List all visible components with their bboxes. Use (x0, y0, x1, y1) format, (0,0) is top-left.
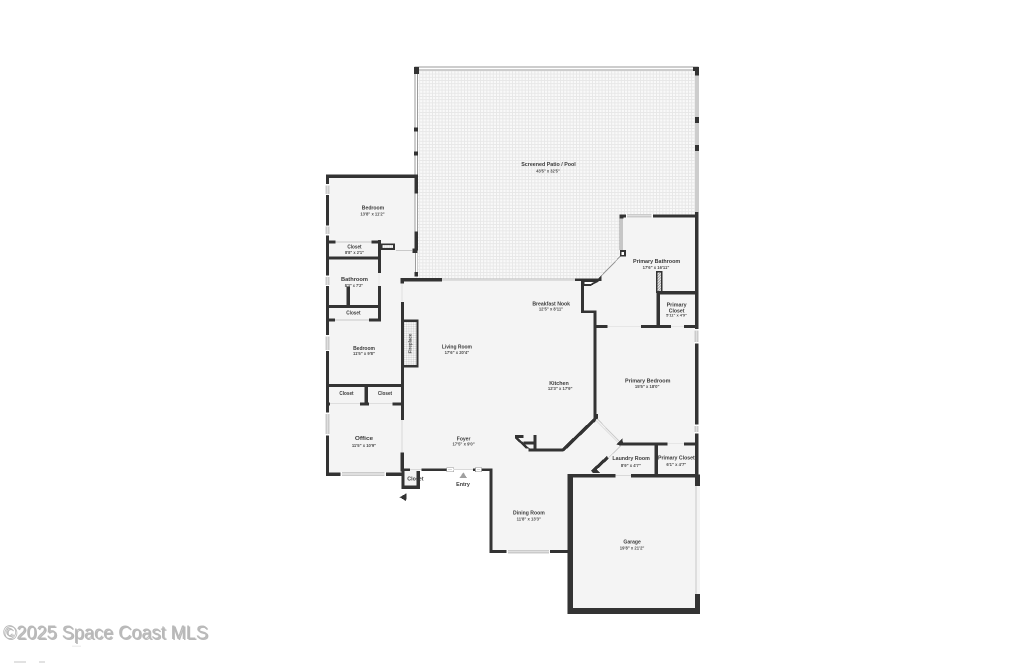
svg-text:11'5" x 10'9": 11'5" x 10'9" (352, 443, 376, 448)
svg-text:8'9" x 4'7": 8'9" x 4'7" (621, 463, 641, 468)
svg-text:6'1" x 4'7": 6'1" x 4'7" (666, 462, 686, 467)
svg-text:12'3" x 17'9": 12'3" x 17'9" (548, 386, 573, 391)
svg-text:©2025 Space Coast MLS: ©2025 Space Coast MLS (3, 623, 208, 644)
svg-text:17'6" x 16'11": 17'6" x 16'11" (643, 265, 670, 270)
svg-text:Closet: Closet (407, 477, 424, 483)
svg-text:11'5" x 9'8": 11'5" x 9'8" (353, 351, 375, 356)
svg-text:Fireplace: Fireplace (408, 333, 413, 353)
svg-text:11'8" x 13'3": 11'8" x 13'3" (517, 516, 541, 521)
svg-text:19'8" x 21'2": 19'8" x 21'2" (620, 545, 645, 550)
svg-text:8'3" x 7'2": 8'3" x 7'2" (345, 283, 363, 288)
svg-text:Entry: Entry (456, 482, 470, 488)
svg-text:17'6" x 20'4": 17'6" x 20'4" (445, 350, 470, 355)
svg-text:13'8" x 11'2": 13'8" x 11'2" (360, 211, 384, 216)
svg-text:15'5" x 18'0": 15'5" x 18'0" (635, 384, 660, 389)
svg-text:8'8" x 2'1": 8'8" x 2'1" (345, 250, 364, 255)
svg-text:Screened Patio / Pool: Screened Patio / Pool (521, 162, 576, 168)
svg-text:Office: Office (355, 436, 373, 442)
svg-text:Closet: Closet (346, 311, 360, 317)
svg-text:Closet: Closet (378, 391, 392, 397)
svg-text:Primary Closet: Primary Closet (658, 456, 695, 462)
svg-text:Closet: Closet (339, 391, 353, 397)
svg-text:12'5" x 8'11": 12'5" x 8'11" (539, 307, 563, 312)
svg-text:5'11" x 4'9": 5'11" x 4'9" (666, 313, 687, 318)
svg-text:43'5" x 32'5": 43'5" x 32'5" (536, 169, 560, 174)
svg-text:17'5" x 9'0": 17'5" x 9'0" (452, 441, 474, 446)
svg-text:Laundry Room: Laundry Room (612, 456, 649, 462)
